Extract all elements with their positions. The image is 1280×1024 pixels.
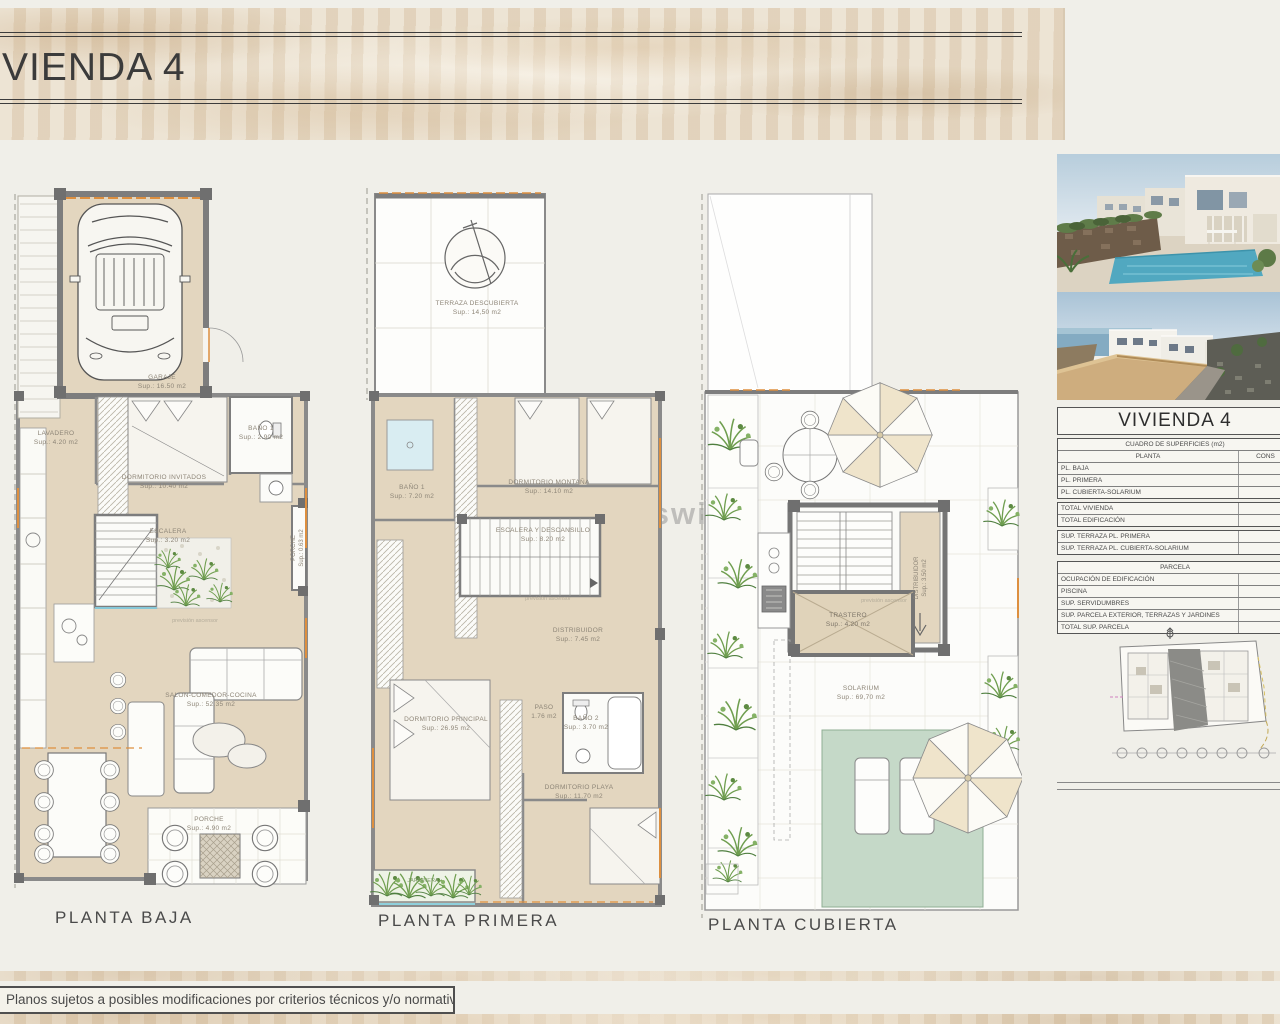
room-label-paso: PASO 1.76 m2 [531,704,557,722]
header-rule-top [0,32,1022,37]
summary-table-title: VIVIENDA 4 [1057,407,1280,435]
room-label-escalera: ESCALERA Sup.: 3.20 m2 [146,528,190,546]
label-jardinera: JARDINERA [407,878,438,884]
room-label-dormitorio-invitados: DORMITORIO INVITADOS Sup.: 10.40 m2 [122,474,207,492]
disclaimer-note: Planos sujetos a posibles modificaciones… [0,986,455,1014]
plan-name-planta-baja: PLANTA BAJA [55,908,194,928]
photo-villas-coast [1057,292,1280,400]
room-label-porche-lateral: PORCHE Sup.: 0.63 m2 [291,529,307,566]
plan-name-planta-primera: PLANTA PRIMERA [378,911,559,931]
floorplan-planta-baja: GARAJE Sup.: 16.50 m2 LAVADERO Sup.: 4.2… [14,188,359,925]
room-label-garaje: GARAJE Sup.: 16.50 m2 [138,374,186,392]
summary-table-parcela: PARCELA OCUPACIÓN DE EDIFICACIÓN 1 PISCI… [1057,561,1280,634]
site-location-plan [1108,627,1280,769]
title-block-line [1057,789,1280,790]
room-label-dormitorio-principal: DORMITORIO PRINCIPAL Sup.: 26.95 m2 [404,716,488,734]
label-prevision-ascensor: previsión ascensor [172,618,218,624]
table-row: TOTAL EDIFICACIÓN 21 [1058,514,1280,526]
room-label-dormitorio-montana: DORMITORIO MONTAÑA Sup.: 14.10 m2 [508,479,589,497]
parcela-header: PARCELA [1058,562,1280,573]
table-row: TOTAL VIVIENDA 21 [1058,503,1280,514]
photo-villas-pool [1057,154,1280,292]
floorplan-planta-cubierta: DISTRIBUIDOR Sup.: 3.50 m2 previsión asc… [700,188,1022,925]
table-row: PL. BAJA 16 [1058,462,1280,474]
header-rule-bottom [0,99,1022,104]
label-prevision-ascensor-cubierta: previsión ascensor [861,598,907,604]
room-label-lavadero: LAVADERO Sup.: 4.20 m2 [34,430,78,448]
summary-table-header: CUADRO DE SUPERFICIES (m2) [1058,439,1280,450]
room-label-banio1: BAÑO 1 Sup.: 2.90 m2 [239,425,283,443]
title-block-line [1057,782,1280,783]
table-row: SUP. PARCELA EXTERIOR, TERRAZAS Y JARDIN… [1058,609,1280,621]
table-row: PL. PRIMERA 1 [1058,474,1280,486]
room-label-solarium: SOLARIUM Sup.: 69,70 m2 [837,685,885,703]
room-label-escalera-descansillo: ESCALERA Y DESCANSILLO Sup.: 8.20 m2 [496,527,590,545]
room-label-banio1-p1: BAÑO 1 Sup.: 7.20 m2 [390,484,434,502]
floorplan-planta-cubierta-drawing [700,188,1022,925]
page-title: VIENDA 4 [2,46,186,90]
summary-table-terrazas: SUP. TERRAZA PL. PRIMERA SUP. TERRAZA PL… [1057,530,1280,555]
plan-sheet: VIENDA 4 www.casaswilson.com [0,0,1280,1024]
footer-texture-strip [0,971,1280,981]
table-row: PL. CUBIERTA-SOLARIUM [1058,486,1280,498]
table-row: OCUPACIÓN DE EDIFICACIÓN 1 [1058,573,1280,585]
room-label-distribuidor-cubierta: DISTRIBUIDOR Sup.: 3.50 m2 [914,556,930,599]
table-row-columns: PLANTA CONS [1058,450,1280,462]
label-prevision-ascensor-p1: previsión ascensor [525,596,571,602]
room-label-terraza-descubierta: TERRAZA DESCUBIERTA Sup.: 14,50 m2 [435,300,518,318]
bottom-texture-strip [0,1014,1280,1024]
plan-name-planta-cubierta: PLANTA CUBIERTA [708,915,899,935]
room-label-porche: PORCHE Sup.: 4.90 m2 [187,816,231,834]
floorplan-planta-baja-drawing [14,188,359,925]
room-label-distribuidor-p1: DISTRIBUIDOR Sup.: 7.45 m2 [553,627,603,645]
table-row: SUP. SERVIDUMBRES 5 [1058,597,1280,609]
summary-table-superficies: CUADRO DE SUPERFICIES (m2) PLANTA CONS P… [1057,438,1280,499]
table-row: SUP. TERRAZA PL. CUBIERTA-SOLARIUM 6 [1058,542,1280,554]
floorplan-planta-primera-drawing [365,188,665,925]
room-label-trastero: TRASTERO Sup.: 4.20 m2 [826,612,870,630]
table-row: PISCINA 3 [1058,585,1280,597]
surface-summary-table: VIVIENDA 4 CUADRO DE SUPERFICIES (m2) PL… [1057,407,1280,634]
room-label-dormitorio-playa: DORMITORIO PLAYA Sup.: 11.70 m2 [545,784,614,802]
table-row: SUP. TERRAZA PL. PRIMERA [1058,531,1280,542]
room-label-banio2: BAÑO 2 Sup.: 3.70 m2 [564,715,608,733]
floorplan-planta-primera: TERRAZA DESCUBIERTA Sup.: 14,50 m2 BAÑO … [365,188,665,925]
summary-table-totals: TOTAL VIVIENDA 21 TOTAL EDIFICACIÓN 21 [1057,502,1280,527]
room-label-salon: SALON-COMEDOR-COCINA Sup.: 52.35 m2 [165,692,257,710]
